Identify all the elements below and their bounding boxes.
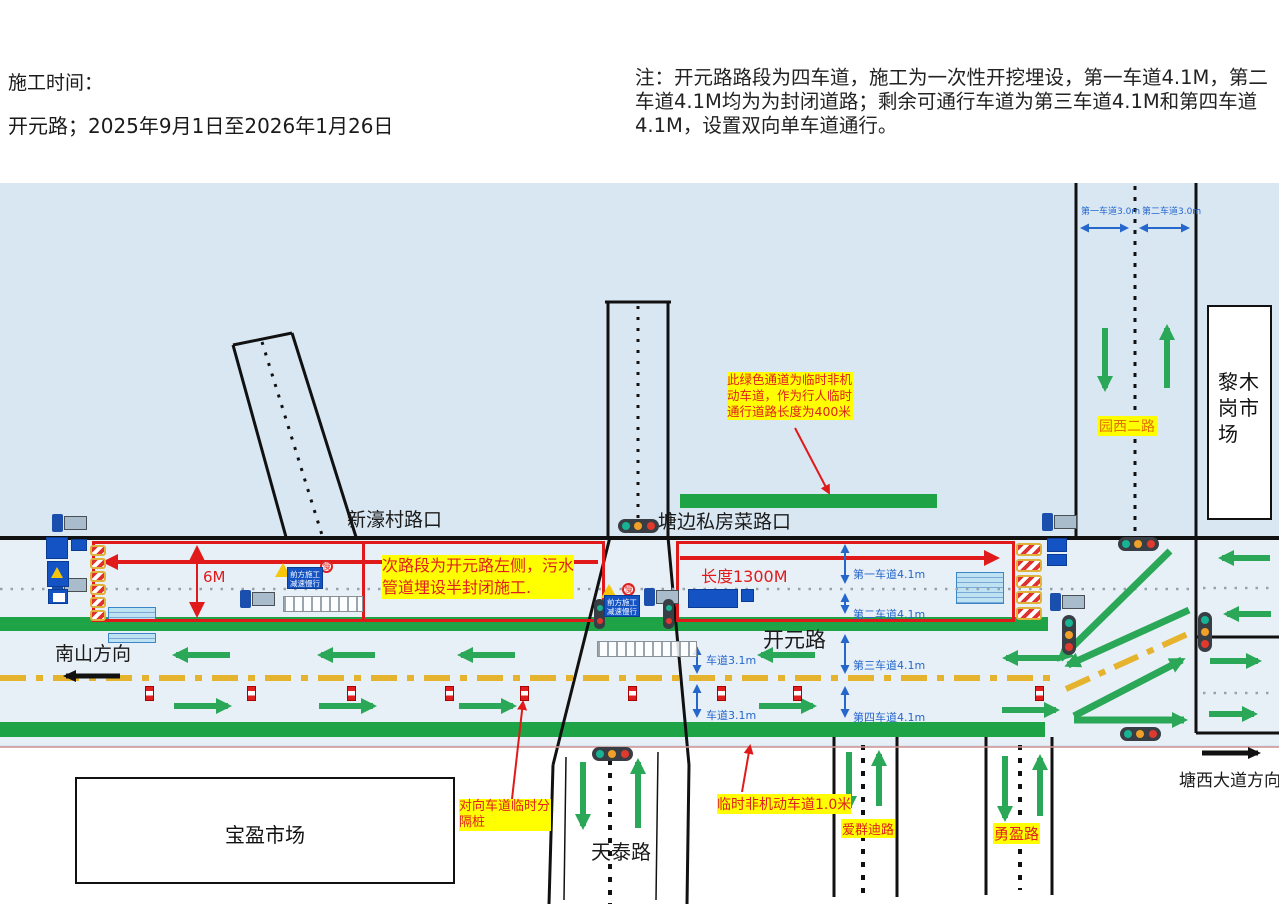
traffic-light: [618, 519, 659, 533]
half-closed-note: 次路段为开元路左侧，污水管道埋设半封闭施工.: [382, 555, 574, 599]
side-lane2-label: 第二车道3.0m: [1142, 204, 1201, 217]
construction-ahead-sign: 前方施工减速慢行: [287, 567, 323, 589]
construction-truck: [644, 587, 680, 607]
traffic-light: [1120, 727, 1161, 741]
length-1300m-label: 长度1300M: [701, 563, 788, 587]
construction-truck: [1050, 592, 1086, 612]
crash-barrier: [90, 610, 106, 621]
traffic-light: [592, 747, 633, 761]
yongying-road-label: 勇盈路: [993, 823, 1040, 844]
diagram-linework: [0, 0, 1279, 904]
divider-post: [445, 686, 454, 701]
kaiyuan-road-label: 开元路: [763, 624, 826, 654]
xinhao-intersection-label: 新濠村路口: [347, 505, 442, 532]
lane2-label: 第二车道4.1m: [853, 606, 925, 622]
crash-barrier: [90, 571, 106, 582]
aiqundi-road-label: 爱群迪路: [841, 819, 895, 838]
traffic-light: [1062, 615, 1076, 655]
divider-post: [793, 686, 802, 701]
pedestrian-fence: [283, 596, 363, 612]
temp-nonmotor-note: 临时非机动车道1.0米: [717, 794, 851, 814]
construction-plan-page: 施工时间： 开元路；2025年9月1日至2026年1月26日 注：开元路路段为四…: [0, 0, 1279, 904]
tiantai-road-label: 天泰路: [591, 836, 651, 865]
lane1-label: 第一车道4.1m: [853, 566, 925, 582]
construction-truck: [240, 589, 276, 609]
lane4-label: 第四车道4.1m: [853, 709, 925, 725]
divider-post: [717, 686, 726, 701]
temp-lane-label: 车道3.1m: [706, 707, 756, 723]
roadside-sign: [48, 589, 68, 604]
divider-post: [1035, 686, 1044, 701]
divider-post: [247, 686, 256, 701]
roadside-sign: [1047, 538, 1067, 552]
divider-post: [520, 686, 529, 701]
construction-truck: [1042, 512, 1078, 532]
traffic-light: [1118, 537, 1159, 551]
width-6m-label: 6M: [203, 568, 226, 586]
temp-lane-label: 车道3.1m: [706, 652, 756, 668]
divider-post: [145, 686, 154, 701]
roadside-sign: [46, 537, 68, 559]
small-blue-sign: [741, 589, 754, 602]
construction-info-sign: [688, 589, 738, 608]
crash-barrier: [1016, 607, 1042, 620]
construction-truck: [52, 513, 88, 533]
divider-post: [347, 686, 356, 701]
tangxi-direction-label: 塘西大道方向: [1179, 766, 1279, 791]
divider-post-note: 对向车道临时分隔桩: [459, 799, 551, 831]
roadside-sign: [47, 561, 69, 587]
crash-barrier: [90, 597, 106, 608]
junction-merge-arrows: [1060, 551, 1189, 720]
yuanxi-road-label: 园西二路: [1097, 416, 1157, 436]
crash-barrier: [1016, 543, 1042, 556]
divider-post: [628, 686, 637, 701]
construction-ahead-sign: 前方施工减速慢行: [604, 595, 640, 617]
roadside-sign: [1047, 554, 1067, 566]
crash-barrier: [90, 545, 106, 556]
pedestrian-fence: [597, 641, 697, 657]
crash-barrier: [90, 584, 106, 595]
side-lane1-label: 第一车道3.0m: [1081, 204, 1140, 217]
nanshan-direction-label: 南山方向: [55, 639, 131, 666]
tangbian-intersection-label: 塘边私房菜路口: [658, 507, 791, 534]
crash-barrier: [1016, 575, 1042, 588]
roadside-sign: [71, 539, 87, 551]
traffic-light: [663, 599, 674, 629]
lane3-label: 第三车道4.1m: [853, 657, 925, 673]
green-channel-note: 此绿色通道为临时非机动车道，作为行人临时通行道路长度为400米: [727, 372, 853, 420]
crash-barrier: [90, 558, 106, 569]
traffic-light: [1198, 612, 1212, 652]
crash-barrier: [1016, 559, 1042, 572]
crash-barrier: [1016, 591, 1042, 604]
